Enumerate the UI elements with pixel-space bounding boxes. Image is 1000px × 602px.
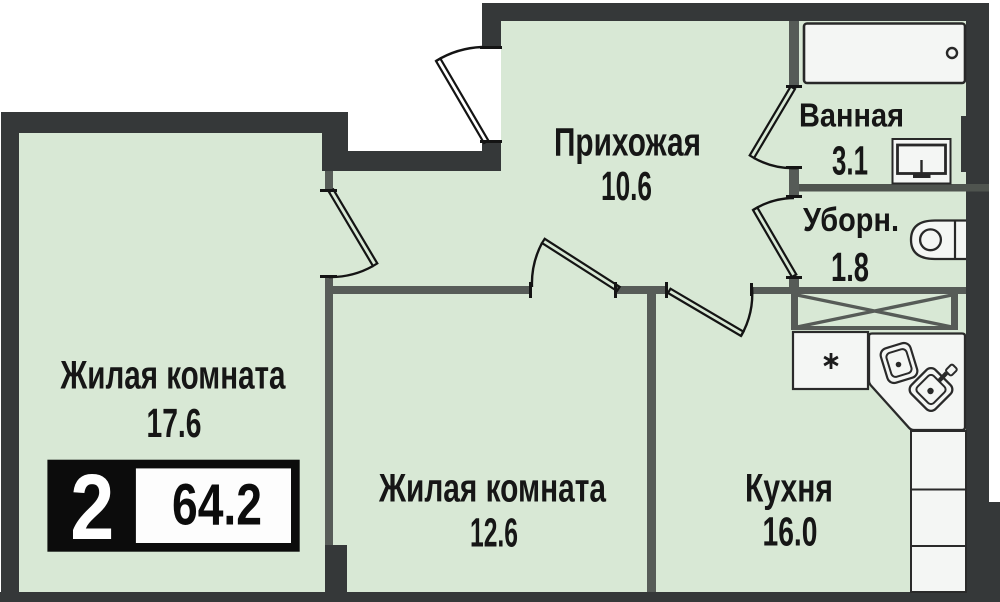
svg-text:2: 2: [70, 455, 114, 559]
svg-text:64.2: 64.2: [172, 473, 262, 538]
svg-text:Уборн.: Уборн.: [803, 201, 899, 238]
svg-text:1.8: 1.8: [831, 244, 869, 290]
svg-text:3.1: 3.1: [832, 138, 868, 184]
svg-text:Прихожая: Прихожая: [554, 121, 701, 165]
svg-text:Ванная: Ванная: [799, 97, 904, 134]
svg-text:12.6: 12.6: [470, 509, 518, 555]
svg-text:Жилая комната: Жилая комната: [378, 466, 606, 510]
svg-text:10.6: 10.6: [601, 163, 652, 209]
svg-text:Жилая комната: Жилая комната: [60, 354, 286, 398]
svg-text:16.0: 16.0: [763, 509, 818, 555]
svg-text:Кухня: Кухня: [745, 467, 833, 511]
svg-text:17.6: 17.6: [147, 400, 202, 446]
